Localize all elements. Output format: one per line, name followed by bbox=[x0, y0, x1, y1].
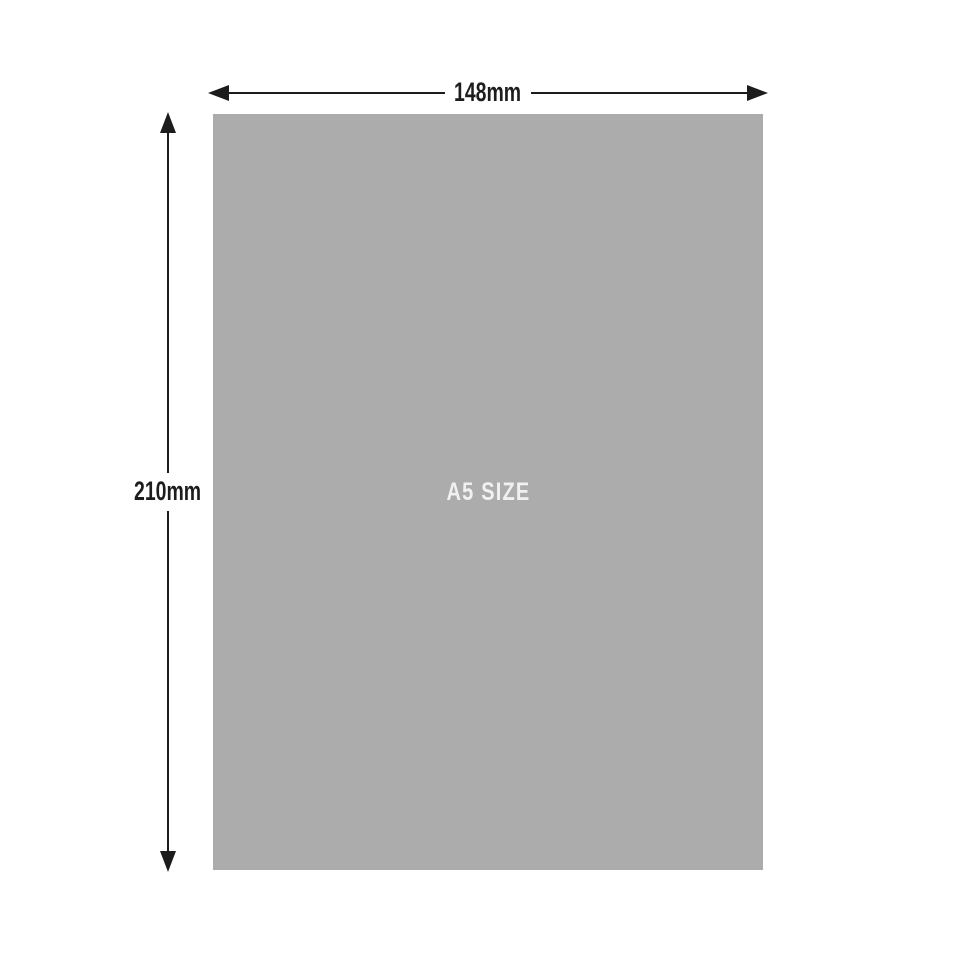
height-dimension: 210mm bbox=[146, 112, 190, 872]
paper-rectangle: A5 SIZE bbox=[213, 114, 763, 870]
paper-size-label: A5 SIZE bbox=[446, 478, 530, 507]
width-dimension-line-left bbox=[229, 92, 445, 94]
arrow-down-icon bbox=[160, 851, 176, 872]
diagram-canvas: A5 SIZE 148mm 210mm bbox=[0, 0, 980, 980]
arrow-up-icon bbox=[160, 112, 176, 133]
arrow-left-icon bbox=[208, 85, 229, 101]
width-dimension-line-right bbox=[531, 92, 747, 94]
width-dimension-label: 148mm bbox=[454, 78, 521, 108]
arrow-right-icon bbox=[747, 85, 768, 101]
height-dimension-label: 210mm bbox=[134, 477, 201, 507]
width-dimension: 148mm bbox=[208, 81, 768, 105]
height-dimension-line-bottom bbox=[167, 511, 169, 851]
height-dimension-line-top bbox=[167, 133, 169, 473]
